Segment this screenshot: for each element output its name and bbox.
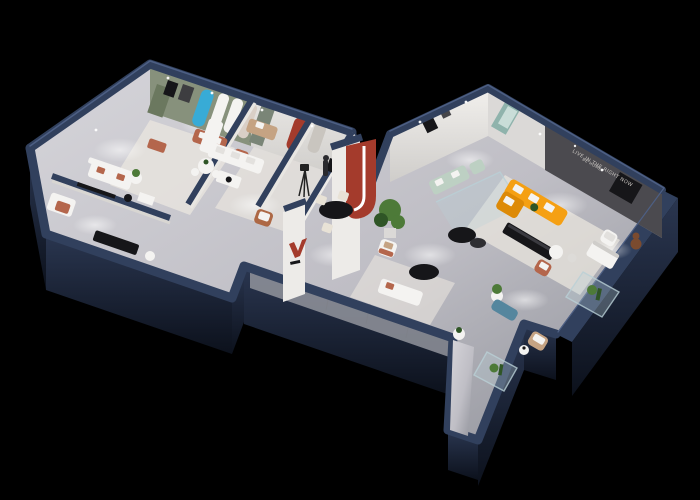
white-side-table <box>519 345 529 355</box>
corridor-plant <box>456 327 462 333</box>
black-oval-table <box>409 264 439 280</box>
plant-pot <box>384 228 396 238</box>
brand-column <box>283 201 307 302</box>
white-round-table <box>549 245 563 259</box>
floorplan-svg: LIVE IN THE RIGHT NOW BE HOME <box>0 0 700 500</box>
white-stool <box>145 251 155 261</box>
black-chair <box>124 194 132 202</box>
plant-white-pot <box>491 284 503 302</box>
black-round-table-small <box>470 238 486 248</box>
showroom-render: LIVE IN THE RIGHT NOW BE HOME <box>0 0 700 500</box>
white-round-table-small <box>568 254 577 263</box>
table-plant <box>204 160 209 165</box>
